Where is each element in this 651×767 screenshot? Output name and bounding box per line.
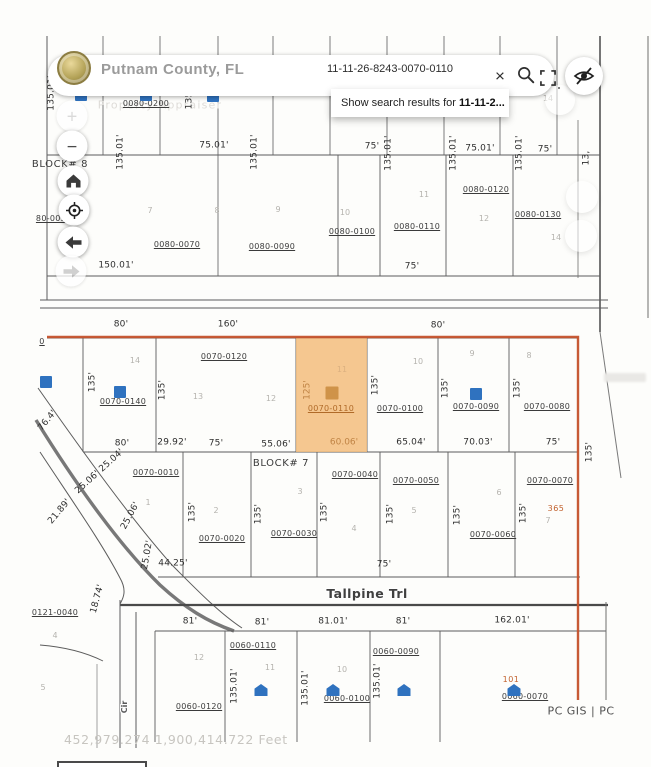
lot-number: 4 [351, 525, 356, 533]
parcel-id-label: 0121-0040 [32, 609, 78, 617]
county-title: Putnam County, FL [101, 61, 244, 78]
dimension-label: 135' [159, 380, 168, 400]
lot-number: 1 [145, 499, 150, 507]
parcel-lines-layer [0, 0, 651, 767]
dimension-label: 135' [321, 502, 330, 522]
street-label-side: Cir [121, 701, 129, 714]
parcel-id-label: 0070-0090 [453, 403, 499, 411]
dimension-label: 29.92' [157, 439, 186, 448]
dimension-label: 135' [586, 442, 595, 462]
zoom-out-button[interactable]: − [57, 131, 88, 162]
dimension-label: 135.01' [302, 670, 311, 705]
lot-number: 11 [419, 191, 429, 199]
dimension-label: 135.01' [516, 135, 525, 170]
dimension-label: 135' [514, 378, 523, 398]
dimension-label: 135.01' [385, 135, 394, 170]
parcel-id-label: 0080-0200 [123, 100, 169, 108]
lot-number: 12 [194, 654, 204, 662]
lot-number: 14 [130, 357, 140, 365]
suggestion-prefix: Show search results for [341, 97, 456, 109]
lot-number: 5 [40, 684, 45, 692]
county-seal-logo [57, 51, 91, 85]
street-label-tallpine: Tallpine Trl [326, 588, 407, 601]
orange-annotation: 365 [548, 505, 565, 513]
parcel-id-label: 0060-0090 [373, 648, 419, 656]
parcel-id-label: 0070-0120 [201, 353, 247, 361]
parcel-id-label: 0070-0060 [470, 531, 516, 539]
lot-number: 4 [52, 632, 57, 640]
house-icon [398, 684, 411, 696]
locate-button[interactable] [59, 195, 90, 226]
dimension-label: 75' [365, 143, 380, 152]
structure-square-icon [114, 386, 126, 398]
parcel-id-label: 0080-0100 [329, 228, 375, 236]
search-suggestion[interactable]: Show search results for 11-11-2... [331, 89, 509, 117]
parcel-id-label: 0070-0070 [527, 477, 573, 485]
parcel-id-label: 0060-0120 [176, 703, 222, 711]
arrow-right-icon [62, 264, 80, 278]
lot-number: 14 [551, 234, 561, 242]
parcel-id-label: 0070-0010 [133, 469, 179, 477]
parcel-id-label: 0070-0140 [100, 398, 146, 406]
lot-number: 12 [479, 215, 489, 223]
dimension-label: 135.01' [374, 663, 383, 698]
highlight-parcel-id: 0070-0110 [308, 405, 354, 413]
coordinate-readout: 452,979.274 1,900,414.722 Feet [64, 732, 288, 747]
dimension-label: 81' [255, 619, 270, 628]
highlight-structure-square-icon [326, 387, 339, 400]
zoom-extent-icon[interactable] [540, 70, 556, 86]
hide-results-button[interactable] [565, 57, 603, 95]
lot-number: 7 [147, 207, 152, 215]
highlight-lot-number: 11 [337, 366, 347, 374]
lot-number: 9 [275, 206, 280, 214]
close-icon[interactable]: × [495, 68, 505, 85]
dimension-label: 135' [442, 378, 451, 398]
lot-number: 2 [213, 507, 218, 515]
search-icon[interactable] [517, 66, 535, 84]
dimension-label: 44.25' [158, 560, 187, 569]
parcel-id-label: 0080-0120 [463, 186, 509, 194]
dimension-label: 75' [405, 263, 420, 272]
lot-number: 13 [193, 393, 203, 401]
dimension-label: 150.01' [98, 262, 133, 271]
parcel-id-label: 0070-0100 [377, 405, 423, 413]
dimension-label: 80' [115, 440, 130, 449]
dimension-label: 75.01' [199, 142, 228, 151]
lot-number: 11 [265, 664, 275, 672]
parcel-id-label: 0080-0130 [515, 211, 561, 219]
dimension-label: 160' [218, 321, 238, 330]
lot-number: 6 [496, 489, 501, 497]
lot-number: 5 [411, 507, 416, 515]
home-icon [65, 174, 81, 189]
faint-text-smudge [604, 373, 646, 382]
lot-number: 8 [526, 352, 531, 360]
dimension-label: 81' [183, 618, 198, 627]
structure-square-icon [40, 376, 52, 388]
dimension-label: 135.01' [251, 134, 260, 169]
house-icon [327, 684, 340, 696]
dimension-label: 135' [387, 504, 396, 524]
back-button[interactable] [58, 227, 89, 258]
dimension-label: 135.01' [231, 668, 240, 703]
parcel-id-label: 0060-0100 [324, 695, 370, 703]
scale-box [57, 761, 147, 767]
parcel-id-label: 0080-0070 [154, 241, 200, 249]
parcel-id-label: 0070-0040 [332, 471, 378, 479]
map-attribution: PC GIS | PC [547, 706, 614, 717]
ghost-circle [566, 181, 598, 213]
dimension-label: 81.01' [318, 618, 347, 627]
house-icon [255, 684, 268, 696]
dimension-label: 75' [377, 561, 392, 570]
dimension-label: 75' [546, 439, 561, 448]
lot-number: 10 [340, 209, 350, 217]
house-icon [508, 684, 521, 696]
suggestion-term: 11-11-2... [459, 97, 505, 109]
parcel-id-label: 0080-0090 [249, 243, 295, 251]
dimension-label: 81' [396, 618, 411, 627]
eye-slash-icon [573, 65, 595, 87]
dimension-label: 80' [431, 322, 446, 331]
forward-button[interactable] [56, 256, 87, 287]
lot-number: 10 [337, 666, 347, 674]
parcel-id-label: 0070-0050 [393, 477, 439, 485]
dimension-label: 135' [520, 503, 529, 523]
lot-number: 3 [297, 488, 302, 496]
parcel-id-label: 0070-0080 [524, 403, 570, 411]
dimension-label: 75' [538, 146, 553, 155]
parcel-id-label: 0070-0030 [271, 530, 317, 538]
lot-number: 10 [413, 358, 423, 366]
dimension-label: 135' [189, 502, 198, 522]
search-input[interactable] [300, 63, 480, 75]
parcel-id-label: 0 [39, 338, 44, 346]
parcel-id-label: 0060-0110 [230, 642, 276, 650]
parcel-id-label: 0080-0110 [394, 223, 440, 231]
highlight-frontage-dim: 60.06' [330, 439, 358, 448]
dimension-label: 13, [583, 151, 592, 166]
minus-icon: − [67, 137, 78, 155]
highlight-depth-dim: 125' [304, 380, 313, 400]
block7-label: BLOCK# 7 [253, 459, 309, 469]
lot-number: 9 [469, 350, 474, 358]
ghost-circle [565, 220, 597, 252]
dimension-label: 135' [255, 504, 264, 524]
dimension-label: 135' [454, 505, 463, 525]
lot-number: 12 [266, 395, 276, 403]
orange-annotation: 101 [503, 676, 520, 684]
dimension-label: 135.01' [450, 135, 459, 170]
dimension-label: 65.04' [396, 439, 425, 448]
map-canvas[interactable]: Property Appraiser BLOCK# 8 BLOCK# 7 Tal… [0, 0, 651, 767]
dimension-label: 135' [89, 372, 98, 392]
dimension-label: 135' [372, 375, 381, 395]
dimension-label: 70.03' [463, 439, 492, 448]
arrow-left-icon [64, 235, 82, 249]
target-icon [65, 201, 83, 219]
home-button[interactable] [58, 166, 89, 197]
dimension-label: 80' [114, 321, 129, 330]
dimension-label: 55.06' [261, 441, 290, 450]
parcel-id-label: 0070-0020 [199, 535, 245, 543]
lot-number: 8 [214, 207, 219, 215]
lot-number: 7 [545, 517, 550, 525]
structure-square-icon [470, 388, 482, 400]
plus-icon: + [67, 107, 78, 125]
zoom-in-button[interactable]: + [57, 101, 88, 132]
dot-artifact [558, 87, 560, 89]
dimension-label: 75.01' [465, 145, 494, 154]
dimension-label: 135.01' [117, 134, 126, 169]
dimension-label: 162.01' [494, 617, 529, 626]
dimension-label: 75' [209, 440, 224, 449]
